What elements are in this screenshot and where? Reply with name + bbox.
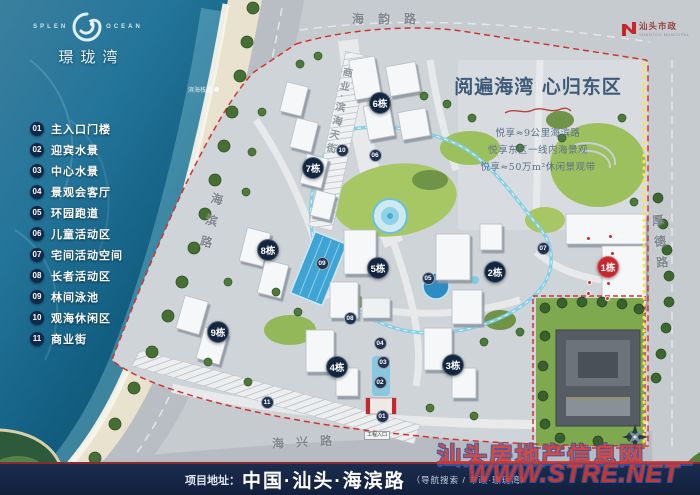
- legend-number: 09: [30, 290, 44, 304]
- legend-number: 02: [30, 143, 44, 157]
- main-gate: [366, 398, 396, 414]
- legend: 01主入口门楼02迎宾水景03中心水景04景观会客厅05环园跑道06儿童活动区0…: [30, 118, 123, 349]
- developer-name: 汕头市政: [639, 22, 690, 31]
- legend-item: 10观海休闲区: [30, 307, 123, 328]
- slogan-line: 悦享≈9公里海滨路: [448, 125, 628, 142]
- legend-number: 05: [30, 206, 44, 220]
- legend-label: 林间泳池: [51, 289, 99, 305]
- logo-en-left: SPLEN: [33, 24, 68, 30]
- legend-label: 主入口门楼: [51, 121, 111, 137]
- legend-label: 景观会客厅: [51, 184, 111, 200]
- legend-label: 儿童活动区: [51, 226, 111, 242]
- legend-number: 08: [30, 269, 44, 283]
- project-logo: SPLEN OCEAN 璟珑湾: [18, 12, 158, 67]
- legend-number: 03: [30, 164, 44, 178]
- legend-number: 07: [30, 248, 44, 262]
- developer-logo: 汕头市政 SHANTOU MUNICIPAL: [622, 22, 690, 37]
- watermark-url: WWW.STRE.NET: [468, 460, 680, 489]
- legend-number: 10: [30, 311, 44, 325]
- legend-number: 06: [30, 227, 44, 241]
- legend-item: 09林间泳池: [30, 286, 123, 307]
- logo-cn: 璟珑湾: [18, 46, 158, 67]
- beach-marker-dot: [214, 87, 219, 92]
- legend-number: 11: [30, 332, 44, 346]
- address-prefix: 项目地址：: [185, 472, 240, 488]
- slogan-line: 悦享≈50万m²休闲景观带: [448, 159, 628, 176]
- logo-en-right: OCEAN: [106, 24, 143, 30]
- legend-label: 观海休闲区: [51, 310, 111, 326]
- legend-item: 06儿童活动区: [30, 223, 123, 244]
- beach-label: 滨海栈道: [188, 85, 219, 94]
- project-address: 中国·汕头·海滨路: [242, 466, 406, 493]
- legend-item: 04景观会客厅: [30, 181, 123, 202]
- legend-label: 中心水景: [51, 163, 99, 179]
- legend-item: 07宅间活动空间: [30, 244, 123, 265]
- legend-number: 01: [30, 122, 44, 136]
- legend-label: 环园跑道: [51, 205, 99, 221]
- legend-label: 宅间活动空间: [51, 247, 123, 263]
- legend-label: 迎宾水景: [51, 142, 99, 158]
- calligraphy-flourish-icon: [503, 105, 573, 117]
- legend-item: 02迎宾水景: [30, 139, 123, 160]
- legend-label: 长者活动区: [51, 268, 111, 284]
- gate-label: 工程入口: [364, 431, 390, 440]
- slogan-block: 阅遍海湾 心归东区 悦享≈9公里海滨路 悦享东区一线内海景观 悦享≈50万m²休…: [448, 72, 628, 176]
- legend-number: 04: [30, 185, 44, 199]
- legend-item: 08长者活动区: [30, 265, 123, 286]
- legend-label: 商业街: [51, 331, 87, 347]
- legend-item: 05环园跑道: [30, 202, 123, 223]
- legend-item: 01主入口门楼: [30, 118, 123, 139]
- legend-item: 03中心水景: [30, 160, 123, 181]
- site-plan-poster: SPLEN OCEAN 璟珑湾 01主入口门楼02迎宾水景03中心水景04景观会…: [0, 0, 700, 495]
- slogan-title: 阅遍海湾 心归东区: [448, 72, 628, 99]
- road-label-top: 海韵路: [352, 10, 430, 27]
- wave-swirl-icon: [72, 12, 102, 42]
- developer-subtitle: SHANTOU MUNICIPAL: [639, 33, 690, 37]
- developer-mark-icon: [622, 22, 636, 36]
- legend-item: 11商业街: [30, 328, 123, 349]
- slogan-line: 悦享东区一线内海景观: [448, 142, 628, 159]
